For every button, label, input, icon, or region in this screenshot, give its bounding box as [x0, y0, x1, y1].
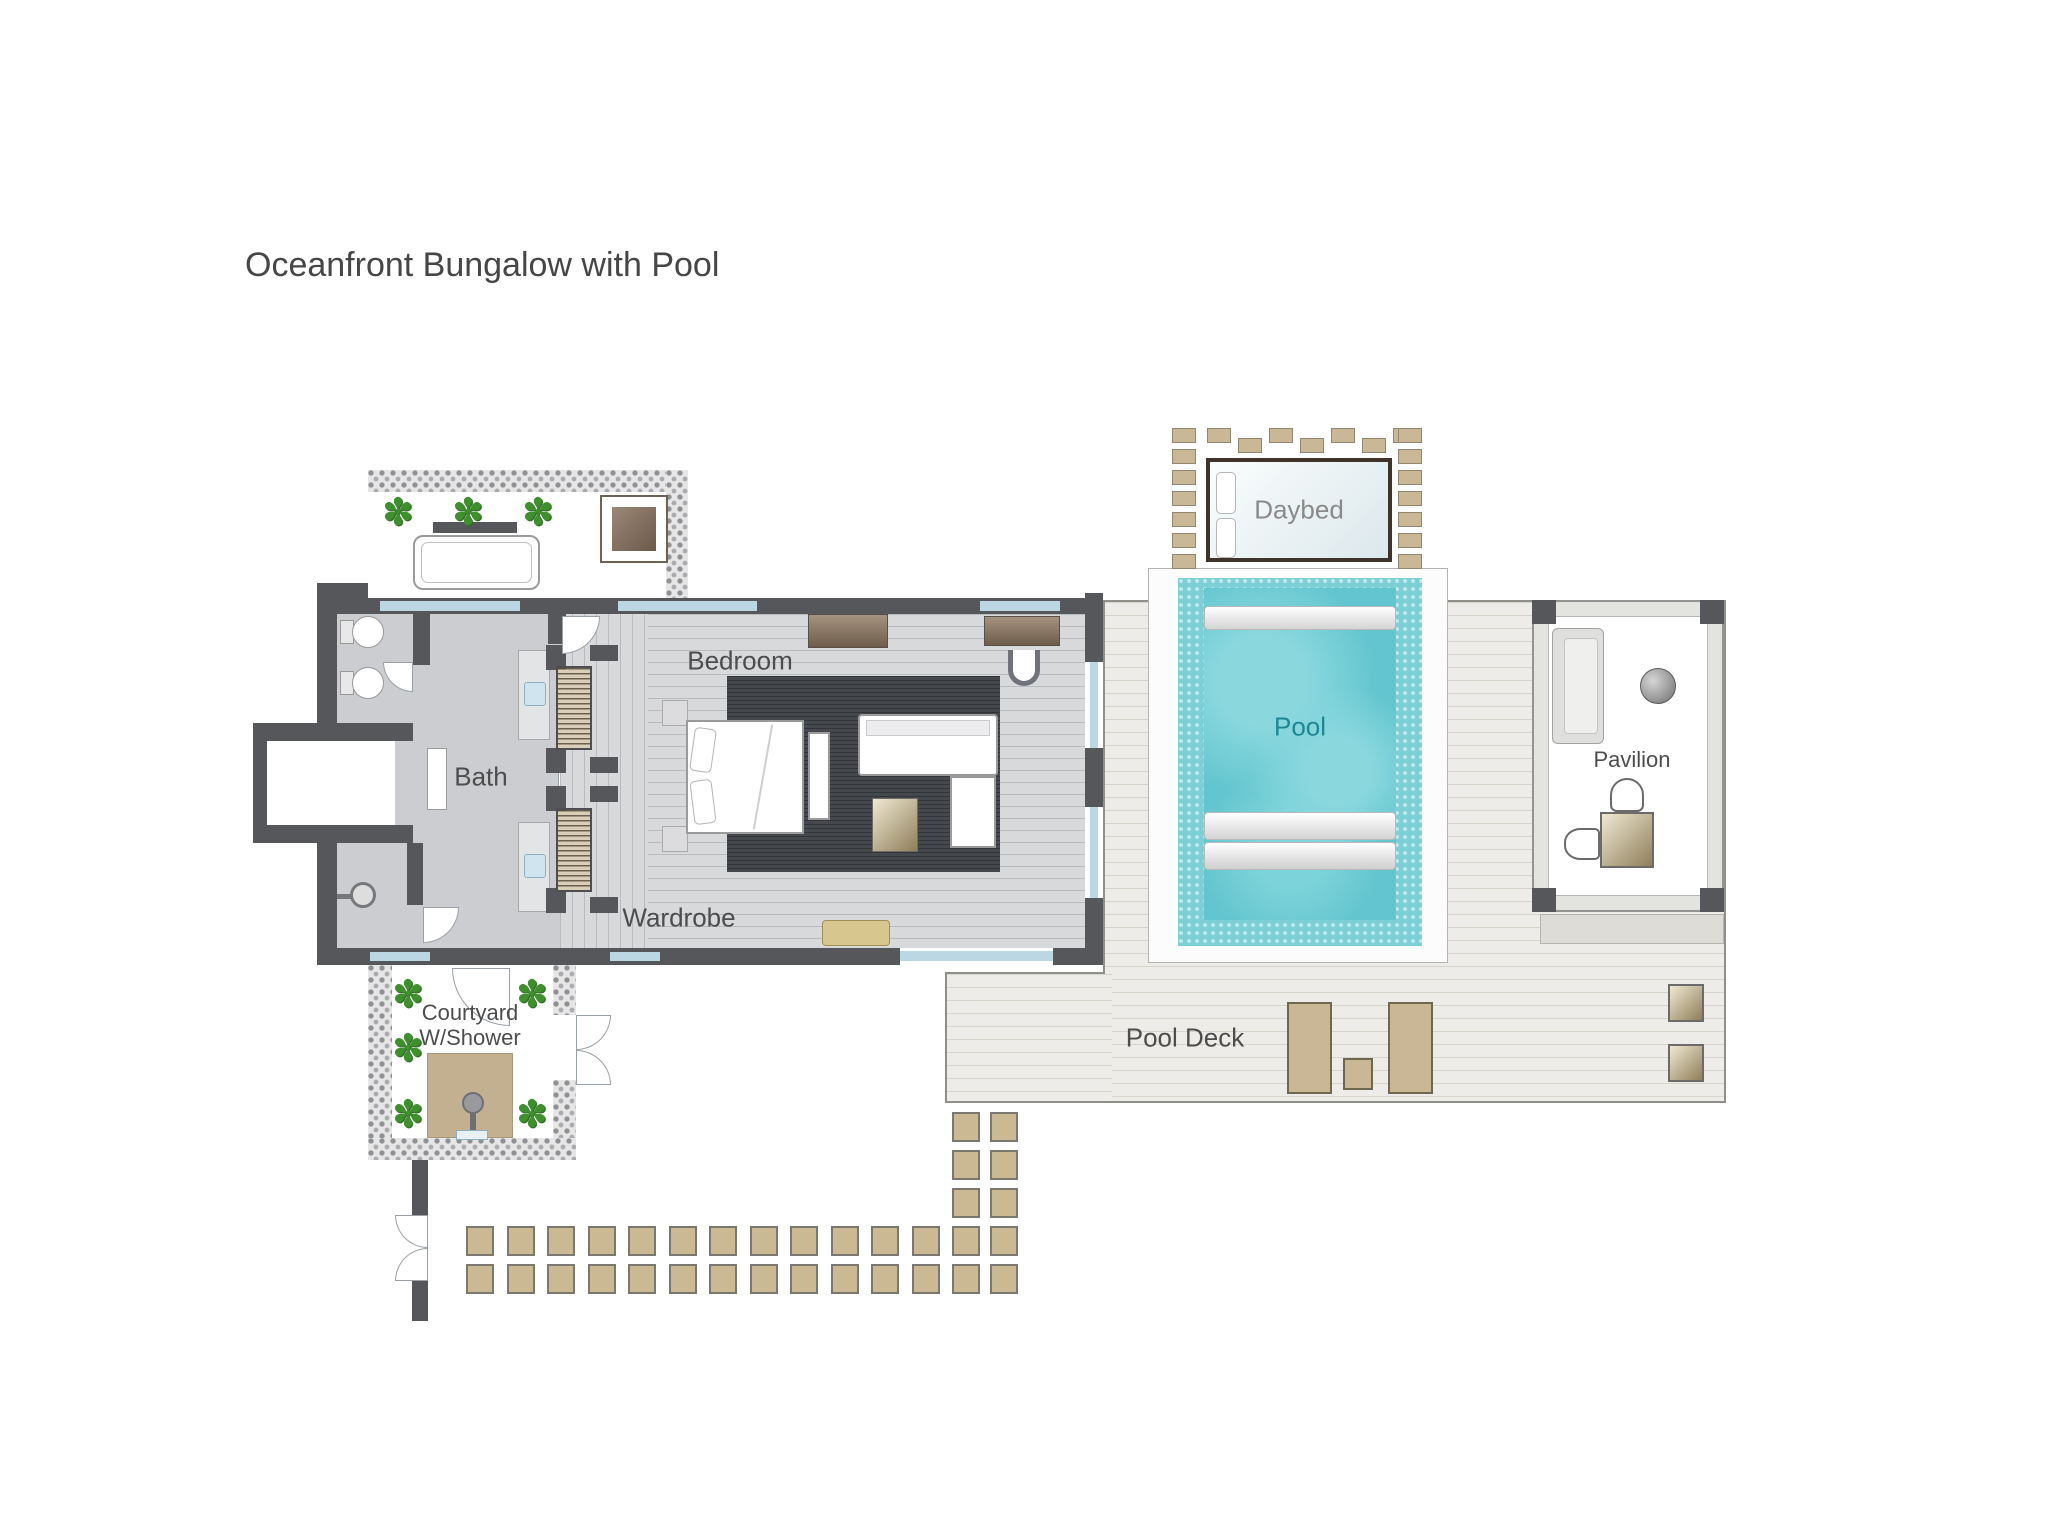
gate-door-leaf	[395, 1215, 428, 1248]
bedroom-south-wall	[1053, 948, 1103, 965]
daybed-paver	[1398, 428, 1422, 443]
daybed-paver	[1172, 554, 1196, 569]
stepping-stone	[466, 1264, 494, 1294]
stepping-stone	[790, 1226, 818, 1256]
deck-seam	[1100, 974, 1112, 1101]
wc-left-wall	[317, 583, 337, 723]
wardrobe-label: Wardrobe	[622, 903, 735, 934]
pavilion-post	[1700, 600, 1724, 624]
pavilion-round-table	[1640, 668, 1676, 704]
deck-stool	[1668, 1044, 1704, 1082]
daybed-label: Daybed	[1254, 495, 1344, 526]
plant-icon: ✽	[382, 494, 414, 532]
bedroom-south-window	[610, 952, 660, 961]
wardrobe-post	[546, 748, 566, 773]
stepping-stone	[952, 1264, 980, 1294]
bath-south-wall	[317, 948, 560, 965]
pool-label: Pool	[1274, 712, 1326, 743]
daybed-paver	[1172, 512, 1196, 527]
console-table	[984, 616, 1060, 646]
shower-head-icon	[350, 882, 376, 908]
daybed-paver	[1172, 449, 1196, 464]
pool-step-bottom	[1204, 812, 1396, 840]
stepping-stone	[871, 1226, 899, 1256]
bedroom-south-glass	[900, 951, 1053, 961]
garden-wall	[412, 1160, 428, 1215]
stepping-stone	[952, 1188, 980, 1218]
east-wall-post	[1085, 593, 1103, 662]
console-table	[808, 614, 888, 648]
wardrobe-post	[590, 786, 618, 802]
daybed-paver	[1172, 491, 1196, 506]
nightstand	[662, 700, 688, 726]
stepping-stone	[831, 1226, 859, 1256]
page-title: Oceanfront Bungalow with Pool	[245, 246, 719, 285]
east-wall-post	[1085, 748, 1103, 807]
daybed-paver	[1331, 428, 1355, 443]
pool-deck-label: Pool Deck	[1126, 1023, 1245, 1054]
daybed-paver	[1172, 470, 1196, 485]
stepping-stone	[990, 1112, 1018, 1142]
pavilion-chair	[1610, 778, 1644, 812]
sun-lounger	[1287, 1002, 1332, 1094]
toilet-icon	[352, 616, 384, 648]
shower-left-wall	[317, 843, 337, 965]
daybed-paver	[1398, 491, 1422, 506]
stepping-stone	[912, 1264, 940, 1294]
courtyard-east-door-leaf	[576, 1015, 611, 1050]
courtyard-label-line2: W/Shower	[419, 1025, 520, 1051]
daybed-paver	[1172, 533, 1196, 548]
sofa-back-cushion	[866, 720, 990, 736]
daybed-paver	[1238, 438, 1262, 453]
stepping-stone	[588, 1264, 616, 1294]
bedroom-north-window	[980, 601, 1060, 611]
pavilion-step	[1540, 914, 1724, 944]
pool-water	[1204, 588, 1396, 920]
stepping-stone	[912, 1226, 940, 1256]
wardrobe-unit-north	[556, 666, 592, 750]
pavilion-label: Pavilion	[1593, 747, 1670, 773]
stepping-stone	[871, 1264, 899, 1294]
terrace-planter-soil	[612, 507, 656, 551]
daybed-pillow	[1216, 518, 1236, 558]
courtyard-label-line1: Courtyard	[422, 1000, 519, 1026]
courtyard-east-door-leaf	[576, 1050, 611, 1085]
daybed-paver	[1398, 449, 1422, 464]
stepping-stone	[628, 1226, 656, 1256]
notch-bottom-wall	[253, 825, 413, 843]
pool-step-top	[1204, 606, 1396, 630]
pavilion-dining-table	[1600, 812, 1654, 868]
pavilion-sofa-cushion	[1564, 638, 1598, 734]
daybed-paver	[1398, 512, 1422, 527]
plant-icon: ✽	[392, 976, 424, 1014]
stepping-stone	[750, 1264, 778, 1294]
daybed-paver	[1398, 554, 1422, 569]
pool-deck-extension	[945, 972, 1107, 1103]
outdoor-shower-stem	[470, 1112, 476, 1132]
pavilion-post	[1700, 888, 1724, 912]
sink-south-icon	[524, 854, 546, 878]
daybed-paver	[1300, 438, 1324, 453]
wall-sconce-icon	[1008, 650, 1040, 686]
stepping-stone	[952, 1150, 980, 1180]
sliding-door-glass	[1090, 807, 1098, 898]
bath-south-window	[370, 952, 430, 961]
stepping-stone	[750, 1226, 778, 1256]
plant-icon: ✽	[516, 976, 548, 1014]
bedroom-north-window	[618, 601, 757, 611]
stepping-stone	[709, 1226, 737, 1256]
pavilion-post	[1532, 600, 1556, 624]
nightstand	[662, 826, 688, 852]
pavilion-chair	[1564, 828, 1600, 860]
daybed-paver	[1398, 533, 1422, 548]
stepping-stone	[547, 1264, 575, 1294]
plant-icon: ✽	[452, 494, 484, 532]
daybed-paver	[1269, 428, 1293, 443]
sliding-door-glass	[1090, 662, 1098, 748]
stepping-stone	[588, 1226, 616, 1256]
bidet-icon	[352, 667, 384, 699]
wardrobe-bench	[822, 920, 890, 946]
courtyard-pebble-right	[553, 965, 576, 1015]
terrace-window	[380, 601, 520, 611]
stepping-stone	[507, 1226, 535, 1256]
plant-icon: ✽	[522, 494, 554, 532]
chaise	[950, 776, 996, 848]
daybed-pillow	[1216, 472, 1236, 514]
stepping-stone	[990, 1264, 1018, 1294]
stepping-stone	[547, 1226, 575, 1256]
wardrobe-post	[590, 645, 618, 661]
garden-wall	[412, 1281, 428, 1321]
plant-icon: ✽	[516, 1096, 548, 1134]
stepping-stone	[952, 1226, 980, 1256]
shower-east-wall	[407, 843, 423, 905]
daybed-paver	[1172, 428, 1196, 443]
daybed-paver	[1362, 438, 1386, 453]
outdoor-shower-head-icon	[462, 1092, 484, 1114]
stepping-stone	[669, 1264, 697, 1294]
exterior-notch	[267, 741, 395, 825]
wardrobe-post	[590, 897, 618, 913]
terrace-pebble-border-top	[368, 470, 688, 492]
bath-bench	[427, 748, 447, 810]
terrace-pebble-border-right	[666, 470, 688, 612]
sink-north-icon	[524, 682, 546, 706]
plant-icon: ✽	[392, 1096, 424, 1134]
daybed-paver	[1207, 428, 1231, 443]
deck-stool	[1668, 984, 1704, 1022]
stepping-stone	[709, 1264, 737, 1294]
stepping-stone	[952, 1112, 980, 1142]
bath-label: Bath	[454, 762, 508, 793]
wardrobe-post	[590, 757, 618, 773]
bed-bench	[808, 732, 830, 820]
floor-plan: Oceanfront Bungalow with Pool	[0, 0, 2048, 1536]
stepping-stone	[990, 1150, 1018, 1180]
stepping-stone	[466, 1226, 494, 1256]
coffee-table	[872, 798, 918, 852]
bedroom-label: Bedroom	[687, 646, 793, 677]
stepping-stone	[990, 1188, 1018, 1218]
sun-lounger	[1388, 1002, 1433, 1094]
daybed-paver	[1398, 470, 1422, 485]
deck-side-table	[1343, 1058, 1373, 1090]
stepping-stone	[831, 1264, 859, 1294]
pool-step-bottom	[1204, 842, 1396, 870]
plant-icon: ✽	[392, 1030, 424, 1068]
stepping-stone	[990, 1226, 1018, 1256]
courtyard-pebble-bottom	[368, 1138, 576, 1160]
notch-top-wall	[253, 723, 413, 741]
pavilion-post	[1532, 888, 1556, 912]
stepping-stone	[790, 1264, 818, 1294]
courtyard-pebble-left	[368, 965, 392, 1160]
outdoor-shower-base	[456, 1130, 488, 1140]
stepping-stone	[669, 1226, 697, 1256]
stepping-stone	[507, 1264, 535, 1294]
stepping-stone	[628, 1264, 656, 1294]
gate-door-leaf	[395, 1248, 428, 1281]
wardrobe-unit-south	[556, 808, 592, 892]
bathtub-inner	[421, 542, 532, 583]
